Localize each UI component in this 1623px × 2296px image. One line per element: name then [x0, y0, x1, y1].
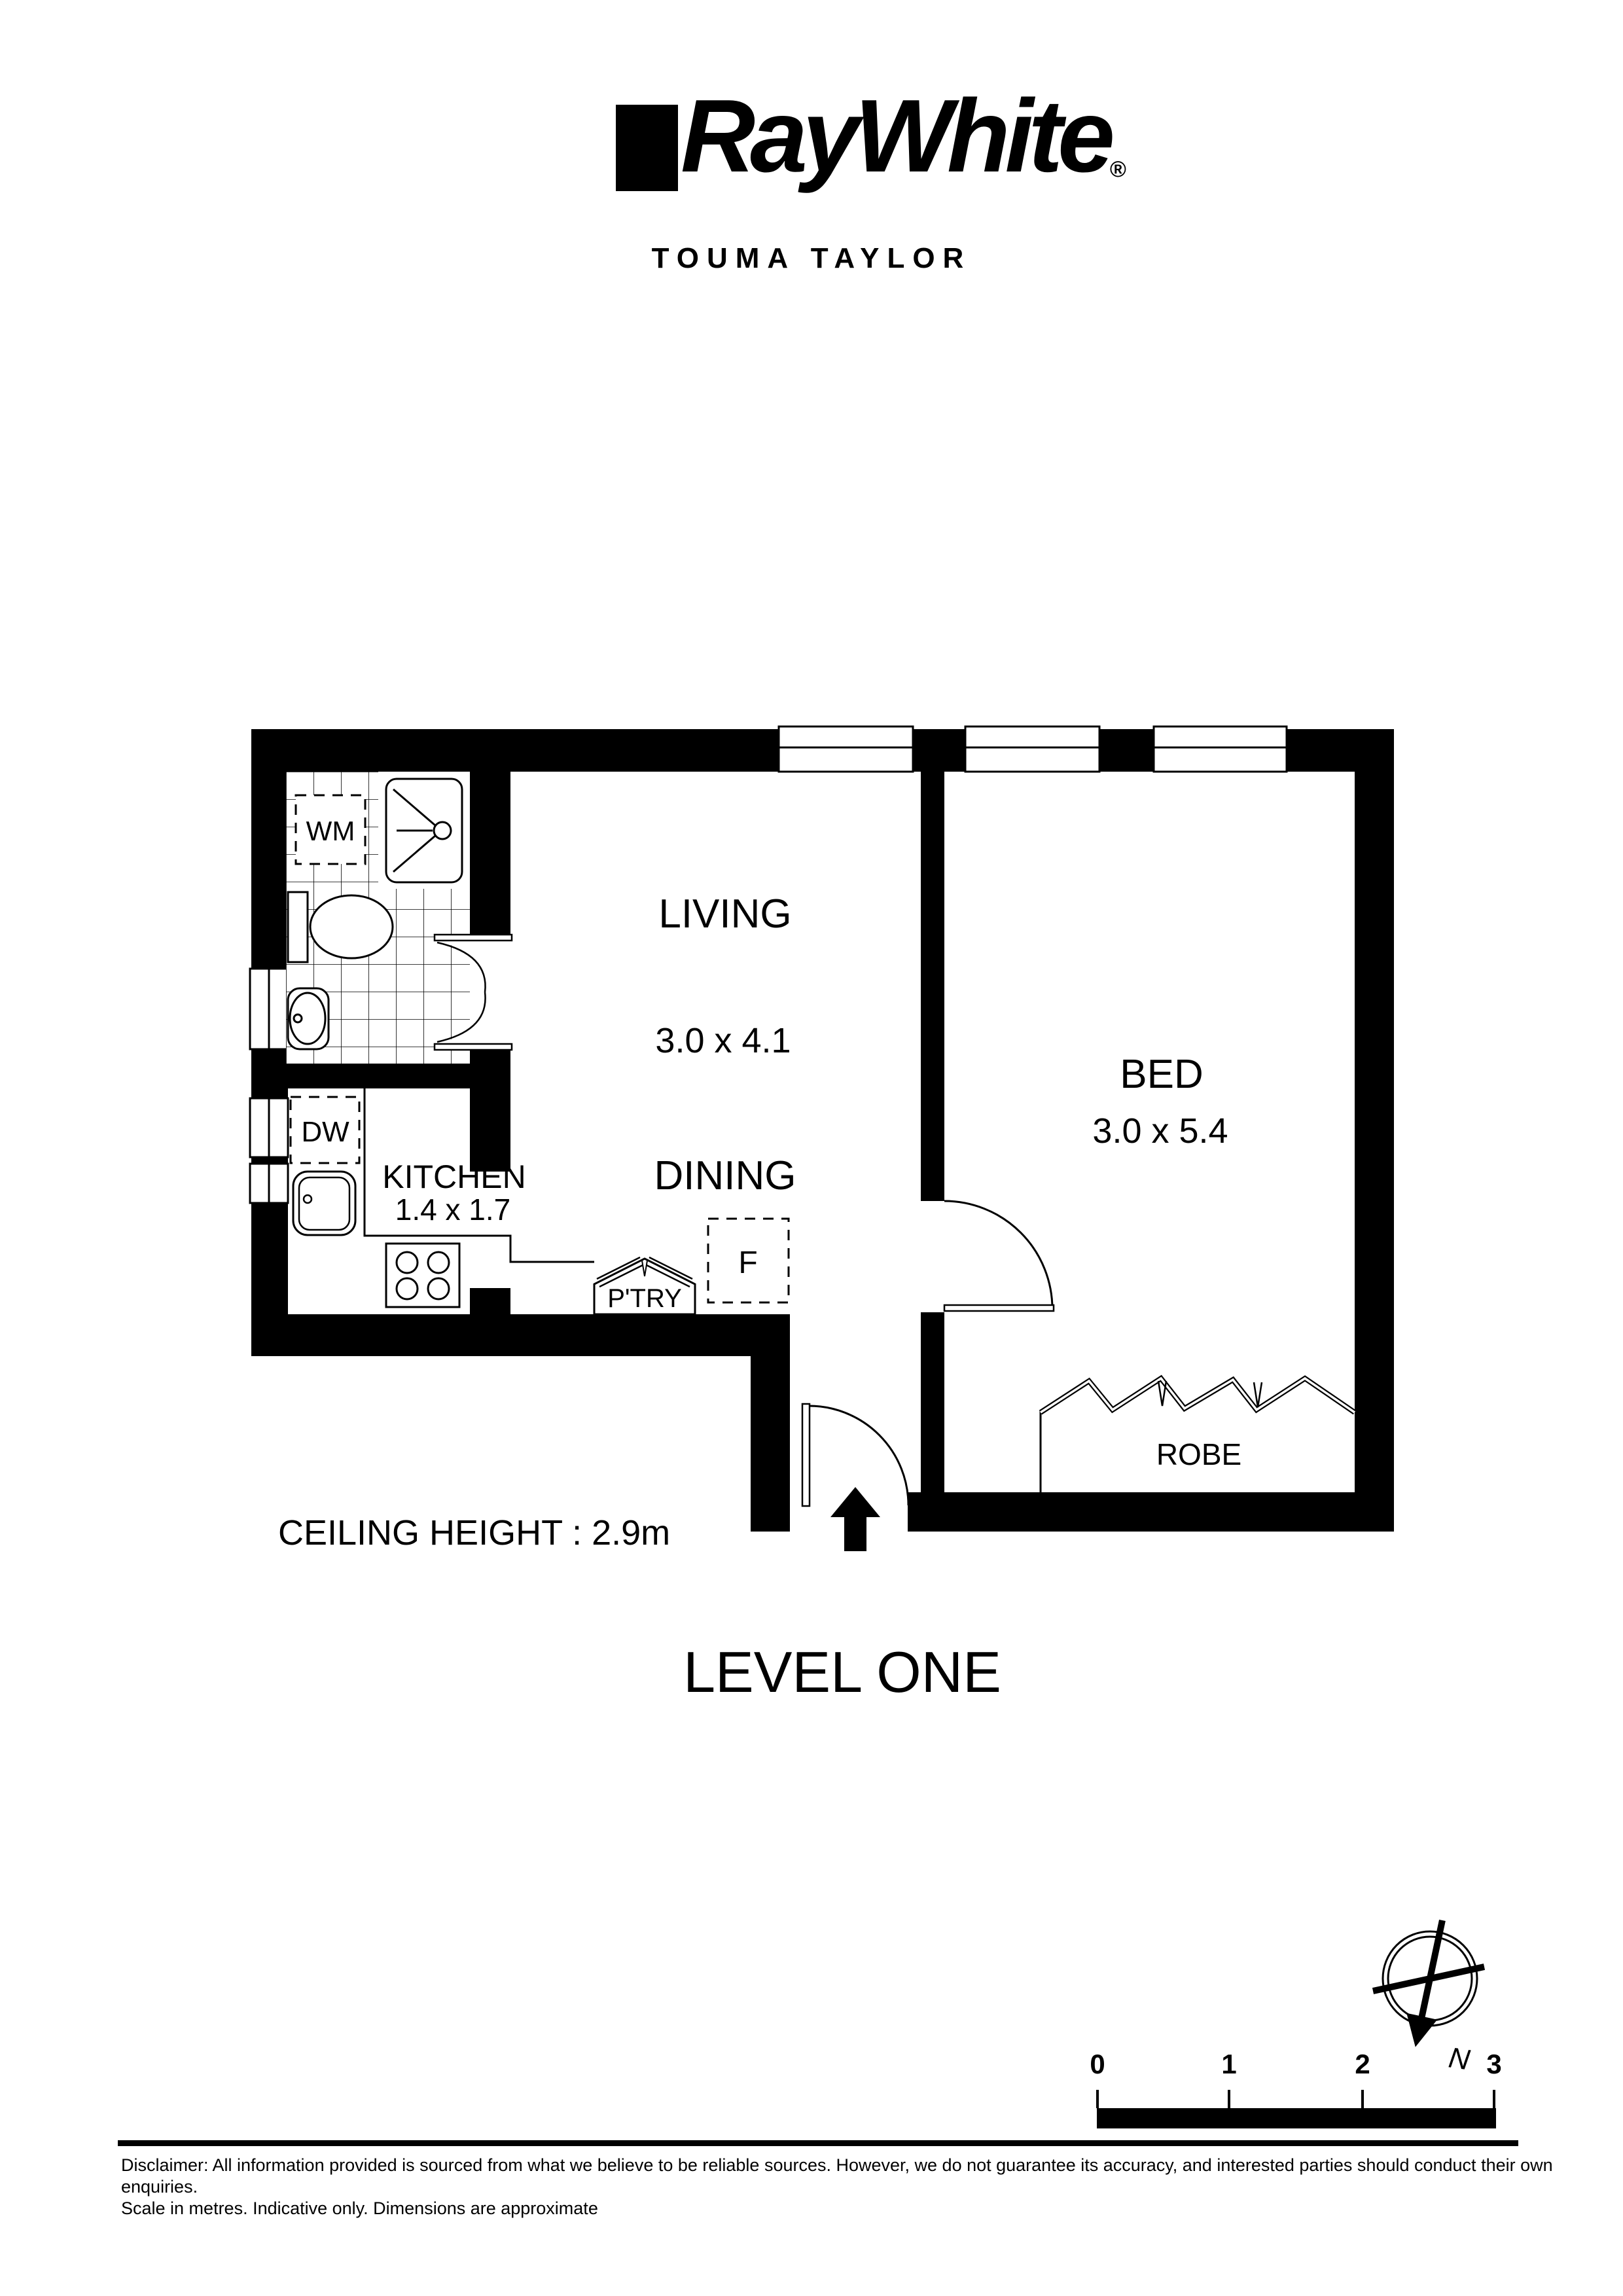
dining-label: DINING: [654, 1153, 796, 1198]
washing-machine-icon: WM: [296, 795, 365, 864]
compass-north-label: N: [1447, 2041, 1472, 2076]
compass-icon: N: [1373, 1917, 1484, 2076]
kitchen-dims: 1.4 x 1.7: [395, 1193, 510, 1227]
wm-label: WM: [306, 816, 355, 846]
robe-label: ROBE: [1156, 1437, 1241, 1471]
living-dims: 3.0 x 4.1: [655, 1021, 791, 1060]
footer-divider: [118, 2140, 1518, 2146]
living-label: LIVING: [658, 891, 791, 937]
level-title: LEVEL ONE: [683, 1640, 1001, 1704]
disclaimer-line1: Disclaimer: All information provided is …: [121, 2155, 1623, 2198]
scale-tick-0: 0: [1090, 2049, 1105, 2079]
bed-dims: 3.0 x 5.4: [1092, 1111, 1228, 1151]
pantry-label: P'TRY: [607, 1284, 682, 1313]
kitchen: DW P'TRY F: [291, 1088, 789, 1314]
pantry-icon: P'TRY: [594, 1257, 695, 1314]
disclaimer-line2: Scale in metres. Indicative only. Dimens…: [121, 2198, 1623, 2219]
window-icon: [779, 726, 913, 772]
window-icon: [1154, 726, 1287, 772]
window-icon: [250, 1098, 288, 1157]
robe-icon: ROBE: [1041, 1378, 1355, 1492]
scale-tick-3: 3: [1486, 2049, 1501, 2079]
bed-door-icon: [919, 1201, 1054, 1312]
window-icon: [250, 969, 288, 1049]
window-icon: [250, 1164, 288, 1203]
scale-bar: 0 1 2 3: [1090, 2049, 1501, 2128]
bed-label: BED: [1120, 1052, 1203, 1097]
fridge-label: F: [738, 1246, 757, 1280]
fridge-icon: F: [708, 1219, 789, 1302]
window-icon: [965, 726, 1099, 772]
stove-icon: [386, 1244, 459, 1307]
scale-tick-1: 1: [1221, 2049, 1236, 2079]
scale-tick-2: 2: [1355, 2049, 1370, 2079]
sink-icon: [293, 1172, 355, 1235]
dishwasher-icon: DW: [291, 1097, 359, 1163]
windows-top: [779, 726, 1287, 772]
floor-plan: WM DW: [0, 0, 1623, 2296]
basin-icon: [288, 988, 329, 1049]
dw-label: DW: [301, 1116, 349, 1148]
shower-icon: [378, 772, 470, 889]
disclaimer: Disclaimer: All information provided is …: [121, 2155, 1623, 2219]
kitchen-label: KITCHEN: [382, 1158, 526, 1195]
ceiling-height-note: CEILING HEIGHT : 2.9m: [278, 1513, 670, 1552]
toilet-icon: [288, 892, 393, 962]
